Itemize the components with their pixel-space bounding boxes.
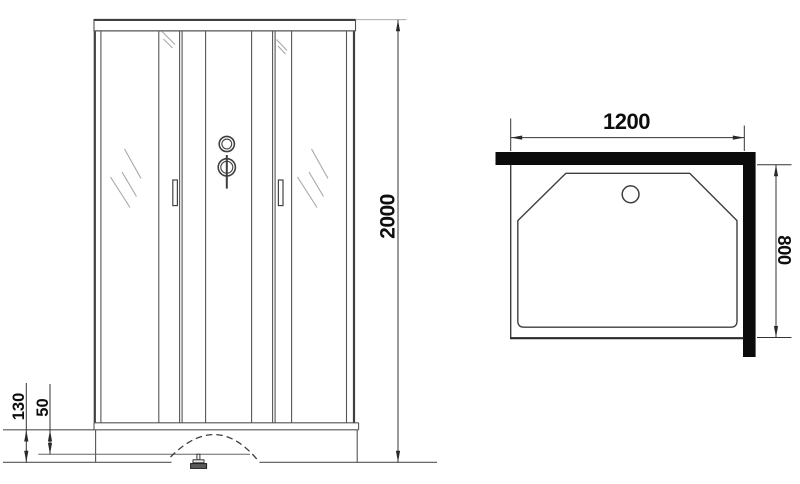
panel-frame-lines: [94, 31, 356, 423]
arrow-left-icon: [511, 136, 523, 140]
arrow-right-icon: [733, 136, 745, 140]
door-handle-right: [278, 180, 283, 206]
wall-profile-horizontal: [496, 152, 756, 165]
width-dimension-label: 1200: [603, 109, 650, 134]
glass-hatch-marks: [111, 32, 329, 208]
height-dimension-label: 2000: [377, 194, 400, 239]
shower-cabin-drawing: 2000 130 50: [0, 0, 800, 484]
base-height-dimension-label: 130: [10, 393, 28, 421]
arrow-up-icon: [48, 430, 52, 442]
arrow-up-icon: [24, 430, 28, 442]
top-rail: [94, 19, 356, 30]
arrow-up-icon: [396, 20, 400, 32]
arrow-down-icon: [48, 443, 52, 455]
front-view: 2000 130 50: [3, 19, 437, 468]
drain-circle: [622, 186, 639, 203]
shower-tray-front: [3, 423, 437, 469]
base-inner-dimension-label: 50: [34, 398, 52, 416]
door-handle-left: [173, 180, 178, 206]
technical-drawing-canvas: 2000 130 50: [0, 0, 800, 484]
arrow-down-icon: [24, 451, 28, 463]
wall-profile-vertical: [743, 152, 756, 357]
arrow-down-icon: [774, 326, 778, 338]
mixer-knob: [218, 136, 235, 188]
depth-dimension-label: 800: [774, 235, 795, 265]
arrow-up-icon: [774, 165, 778, 177]
arrow-down-icon: [396, 451, 400, 463]
apron-cutout-dashed-arc: [171, 435, 259, 462]
adjustable-foot: [191, 454, 207, 468]
top-view: 1200 800: [496, 109, 796, 357]
